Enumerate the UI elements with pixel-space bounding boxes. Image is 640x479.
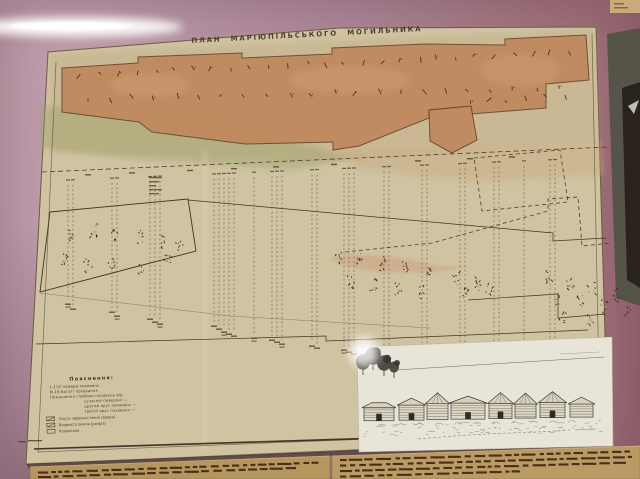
caption-word: [426, 462, 435, 464]
grave-tick: [288, 63, 289, 68]
grave-tick-dot: [437, 55, 438, 56]
caption-word: [397, 474, 412, 476]
caption-word: [514, 454, 519, 456]
caption-word: [38, 472, 48, 474]
small-wall-label-text: [614, 7, 628, 9]
section-label-bottom: [66, 307, 71, 308]
grave-tick-dot: [356, 92, 357, 93]
section-label-bottom: [269, 340, 275, 341]
house-door: [409, 413, 415, 420]
caption-word: [547, 458, 557, 460]
section-label-bottom: [152, 322, 158, 323]
stacked-label-line: [149, 185, 156, 186]
caption-word: [494, 465, 500, 467]
burial-figure-stroke: [375, 290, 376, 291]
caption-word: [340, 470, 352, 472]
grave-tick-dot: [472, 101, 473, 102]
caption-word: [199, 466, 206, 468]
caption-word: [170, 467, 182, 469]
caption-word: [250, 464, 255, 466]
caption-word: [613, 456, 625, 458]
caption-word: [185, 466, 190, 468]
section-label-top: [553, 159, 557, 160]
caption-word: [223, 465, 229, 467]
section-label-bottom: [280, 347, 285, 348]
section-label-bottom: [231, 336, 237, 337]
caption-word: [522, 454, 536, 456]
section-label-bottom: [341, 350, 347, 351]
burial-figure-stroke: [372, 289, 373, 291]
caption-word: [87, 470, 98, 472]
tree: [394, 360, 400, 366]
caption-word: [548, 464, 555, 466]
ochre-spot: [381, 264, 385, 268]
caption-word: [495, 460, 505, 462]
section-label-top: [110, 178, 114, 179]
section-label-top: [227, 173, 231, 174]
burial-figure-stroke: [559, 297, 560, 298]
section-label-top: [522, 160, 526, 161]
caption-word: [38, 476, 51, 478]
burial-figure-stroke: [579, 298, 580, 300]
grave-tick-dot: [194, 66, 195, 67]
scale-mark: [331, 164, 337, 165]
caption-word: [600, 451, 608, 453]
caption-word: [512, 470, 520, 472]
caption-word: [475, 455, 486, 457]
burial-figure-stroke: [614, 291, 615, 292]
caption-word: [243, 464, 247, 466]
caption-word: [477, 466, 485, 468]
scale-mark: [273, 166, 279, 167]
inset-paper: [357, 337, 613, 452]
log-house-body: [570, 404, 593, 417]
caption-word: [599, 462, 609, 464]
caption-word: [355, 470, 360, 472]
caption-word: [260, 468, 268, 470]
scene-canvas: ПЛАН МАРІЮПІЛЬСЬКОГО МОГИЛЬНИКА: [0, 0, 640, 479]
section-label-top: [212, 173, 216, 174]
caption-word: [533, 464, 546, 466]
house-door: [465, 412, 471, 419]
section-label-top: [382, 166, 386, 167]
section-label-top: [352, 167, 356, 168]
scale-mark: [85, 174, 91, 175]
section-label-bottom: [342, 353, 347, 354]
section-label-bottom: [222, 335, 227, 336]
light-glare: [0, 17, 183, 37]
burial-figure-stroke: [613, 295, 615, 297]
burial-figure-stroke: [108, 262, 109, 264]
burial-figure-stroke: [487, 286, 488, 287]
section-label-bottom: [226, 334, 232, 335]
caption-word: [340, 465, 346, 467]
caption-word: [484, 460, 491, 462]
caption-word: [466, 466, 473, 468]
section-label-top: [148, 176, 152, 177]
caption-word: [519, 459, 533, 461]
caption-word: [613, 462, 626, 464]
caption-word: [466, 461, 473, 463]
caption-word: [350, 475, 361, 477]
grave-tick-dot: [120, 72, 121, 73]
burial-figure-stroke: [556, 299, 557, 300]
caption-word: [172, 471, 181, 473]
burial-figure-stroke: [615, 299, 616, 301]
section-label-top: [315, 169, 319, 170]
section-label-bottom: [70, 309, 76, 310]
section-label-bottom: [114, 316, 120, 317]
scale-mark: [415, 160, 421, 161]
caption-word: [58, 471, 62, 473]
section-label-top: [548, 159, 552, 160]
section-label-top: [310, 169, 314, 170]
caption-word: [490, 471, 502, 473]
section-label-bottom: [147, 319, 153, 320]
burial-figure-stroke: [167, 255, 168, 257]
caption-word: [540, 453, 544, 455]
caption-word: [453, 472, 459, 474]
caption-word: [556, 453, 561, 455]
section-label-top: [217, 173, 221, 174]
caption-word: [424, 473, 433, 475]
caption-word: [387, 474, 393, 476]
caption-word: [350, 464, 355, 466]
trench-highlight: [290, 66, 410, 94]
caption-word: [395, 457, 400, 459]
trench-highlight: [110, 73, 190, 97]
burial-figure-stroke: [109, 267, 110, 268]
section-label-top: [153, 176, 157, 177]
caption-word: [443, 467, 452, 469]
scale-mark: [231, 168, 237, 169]
corner-note-text: [18, 441, 26, 442]
caption-word: [111, 469, 121, 471]
caption-word: [160, 467, 168, 469]
caption-word: [508, 459, 516, 461]
ochre-spot: [373, 286, 377, 290]
corner-note-text: [28, 440, 42, 441]
caption-word: [488, 466, 492, 468]
caption-word: [63, 475, 74, 477]
grave-tick-dot: [293, 94, 294, 95]
caption-word: [455, 467, 462, 469]
caption-word: [286, 467, 296, 469]
caption-word: [505, 471, 509, 473]
burial-figure-stroke: [73, 236, 74, 237]
burial-figure-stroke: [141, 267, 142, 268]
section-label-top: [280, 170, 284, 171]
section-label-top: [252, 172, 256, 173]
caption-word: [269, 463, 275, 465]
tree: [383, 355, 391, 363]
caption-word: [248, 468, 257, 470]
caption-word: [560, 458, 564, 460]
caption-word: [277, 463, 291, 465]
caption-word: [415, 473, 421, 475]
caption-word: [340, 459, 347, 461]
caption-word: [505, 454, 512, 456]
caption-word: [475, 460, 481, 462]
caption-word: [104, 474, 111, 476]
glare-core: [8, 22, 132, 31]
grave-tick-dot: [514, 87, 515, 88]
section-label-bottom: [251, 338, 257, 339]
burial-figure-stroke: [349, 283, 350, 285]
burial-figure-stroke: [546, 270, 547, 271]
caption-word: [270, 468, 283, 470]
caption-word: [226, 469, 235, 471]
burial-figure-stroke: [182, 245, 183, 246]
burial-figure-stroke: [595, 288, 596, 289]
burial-figure-stroke: [347, 275, 348, 277]
caption-word: [457, 461, 462, 463]
burial-figure-stroke: [175, 243, 177, 244]
section-label-top: [492, 162, 496, 163]
caption-word: [386, 463, 390, 465]
caption-word: [628, 456, 632, 458]
grave-tick-dot: [154, 96, 155, 97]
section-label-bottom: [109, 312, 115, 313]
grave-tick: [559, 85, 560, 88]
caption-word: [378, 474, 384, 476]
section-label-bottom: [314, 348, 320, 349]
caption-word: [359, 464, 366, 466]
burial-figure-stroke: [395, 294, 396, 295]
caption-word: [138, 468, 143, 470]
house-door: [550, 411, 556, 418]
section-label-top: [347, 168, 351, 169]
caption-word: [624, 450, 630, 452]
caption-word: [399, 468, 413, 470]
section-label-top: [342, 168, 346, 169]
caption-word: [124, 468, 134, 470]
burial-figure-stroke: [398, 292, 399, 294]
section-label-top: [158, 176, 162, 177]
ochre-spot: [589, 318, 593, 322]
scale-mark: [129, 172, 135, 173]
legend-swatch-label: Розкопано: [59, 429, 80, 434]
caption-word: [239, 469, 246, 471]
section-label-top: [425, 164, 429, 165]
caption-word: [416, 468, 430, 470]
house-door: [376, 414, 382, 421]
section-label-bottom: [279, 344, 285, 345]
caption-word: [369, 464, 382, 466]
caption-word: [402, 457, 410, 459]
caption-word: [376, 458, 391, 460]
burial-figure-stroke: [402, 261, 403, 262]
caption-word: [294, 462, 300, 464]
section-label-bottom: [221, 332, 227, 333]
caption-word: [558, 463, 568, 465]
burial-figure-stroke: [178, 243, 179, 244]
scale-mark: [509, 156, 515, 157]
grave-tick-dot: [561, 85, 562, 86]
caption-word: [523, 465, 529, 467]
stacked-label-line: [149, 193, 159, 194]
section-label-top: [66, 179, 70, 180]
caption-word: [375, 469, 384, 471]
section-label-bottom: [252, 341, 257, 342]
caption-word: [476, 471, 487, 473]
section-label-bottom: [211, 326, 217, 327]
section-label-bottom: [274, 342, 280, 343]
section-label-top: [463, 163, 467, 164]
caption-word: [89, 474, 100, 476]
caption-word: [303, 462, 309, 464]
caption-word: [232, 465, 239, 467]
burial-figure-stroke: [171, 256, 172, 257]
ochre-spot: [63, 260, 67, 264]
ochre-spot: [167, 257, 171, 261]
caption-word: [587, 452, 597, 454]
caption-word: [201, 470, 209, 472]
caption-word: [364, 475, 373, 477]
caption-word: [566, 458, 577, 460]
caption-word: [433, 467, 440, 469]
caption-word: [439, 462, 454, 464]
ochre-spot: [569, 284, 573, 288]
grave-tick-dot: [211, 67, 212, 68]
burial-figure-stroke: [113, 267, 114, 268]
caption-word: [572, 463, 580, 465]
caption-word: [147, 472, 156, 474]
section-label-top: [270, 171, 274, 172]
museum-exhibit-photo: ПЛАН МАРІЮПІЛЬСЬКОГО МОГИЛЬНИКА: [0, 0, 640, 479]
caption-word: [564, 452, 571, 454]
stacked-label-line: [149, 181, 159, 182]
caption-word: [147, 468, 156, 470]
caption-word: [581, 457, 596, 459]
caption-word: [51, 471, 56, 473]
section-label-top: [497, 161, 501, 162]
caption-word: [213, 470, 222, 472]
inset-glare: [349, 337, 379, 367]
caption-word: [414, 457, 427, 459]
caption-word: [465, 455, 471, 457]
section-label-bottom: [309, 346, 315, 347]
section-label-top: [115, 177, 119, 178]
ochre-spot: [93, 230, 97, 234]
caption-word: [393, 463, 404, 465]
caption-word: [417, 462, 423, 464]
paper-crease: [202, 150, 208, 450]
burial-figure-stroke: [406, 266, 408, 267]
section-label-top: [420, 165, 424, 166]
caption-word: [132, 473, 145, 475]
stacked-label-line: [149, 177, 162, 178]
caption-word: [311, 462, 318, 464]
caption-word: [362, 469, 373, 471]
section-label-top: [458, 163, 462, 164]
burial-figure-stroke: [403, 266, 404, 267]
caption-word: [388, 469, 397, 471]
burial-figure-stroke: [403, 269, 404, 270]
caption-word: [437, 473, 450, 475]
burial-figure-stroke: [384, 259, 385, 261]
section-label-top: [275, 171, 279, 172]
caption-word: [547, 453, 554, 455]
grave-tick-dot: [401, 58, 402, 59]
caption-word: [504, 465, 519, 467]
section-label-bottom: [115, 319, 120, 320]
grave-tick-dot: [490, 98, 491, 99]
display-case-edge: [607, 0, 640, 306]
burial-figure-stroke: [463, 297, 464, 298]
burial-figure-stroke: [399, 290, 400, 291]
small-wall-label: [610, 0, 640, 13]
caption-word: [193, 466, 197, 468]
caption-word: [54, 475, 59, 477]
caption-word: [211, 465, 219, 467]
caption-word: [102, 469, 109, 471]
burial-figure-stroke: [138, 233, 139, 234]
section-label-top: [71, 179, 75, 180]
grave-tick-dot: [381, 90, 382, 91]
caption-word: [462, 472, 473, 474]
section-label-top: [232, 172, 236, 173]
caption-word: [364, 458, 372, 460]
caption-word: [258, 464, 267, 466]
caption-word: [489, 455, 503, 457]
caption-word: [408, 462, 414, 464]
caption-word: [349, 459, 363, 461]
section-label-top: [222, 173, 226, 174]
section-label-top: [387, 166, 391, 167]
caption-word: [340, 476, 346, 478]
reconstruction-drawing: [349, 337, 613, 452]
caption-word: [113, 473, 128, 475]
caption-word: [64, 471, 69, 473]
section-label-bottom: [157, 324, 163, 325]
caption-word: [536, 459, 544, 461]
section-label-bottom: [216, 329, 222, 330]
burial-figure-stroke: [559, 295, 560, 297]
scale-mark: [187, 170, 193, 171]
small-wall-label-text: [614, 3, 624, 5]
grave-tick-dot: [475, 54, 476, 55]
burial-figure-stroke: [601, 305, 602, 306]
legend-swatch-box: [47, 429, 55, 433]
caption-word: [184, 471, 198, 473]
caption-word: [430, 456, 444, 458]
burial-figure-stroke: [573, 287, 574, 288]
section-label-bottom: [158, 327, 163, 328]
caption-word: [574, 452, 583, 454]
grave-tick-dot: [337, 90, 338, 91]
scale-mark: [467, 158, 473, 159]
stacked-label-line: [149, 189, 162, 190]
caption-word: [159, 472, 169, 474]
burial-figure-stroke: [464, 288, 465, 290]
caption-word: [598, 457, 610, 459]
burial-figure-stroke: [625, 315, 626, 317]
caption-word: [77, 475, 87, 477]
house-door: [498, 412, 504, 419]
grave-tick-dot: [312, 93, 313, 94]
caption-word: [448, 456, 461, 458]
caption-word: [72, 470, 82, 472]
section-label-bottom: [65, 304, 71, 305]
caption-word: [582, 463, 596, 465]
caption-word: [612, 451, 621, 453]
